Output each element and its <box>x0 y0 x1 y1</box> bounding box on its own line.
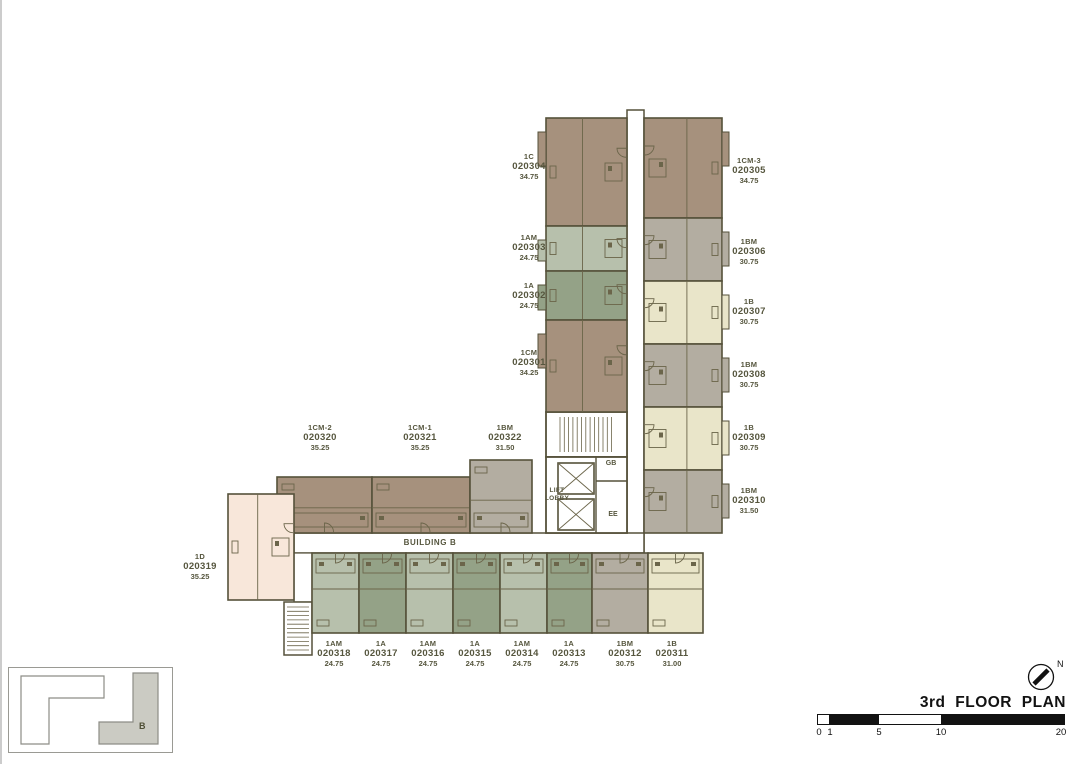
unit-number: 020305 <box>717 166 781 176</box>
key-plan-drawing <box>9 668 170 750</box>
stairs-core <box>546 412 627 457</box>
scale-tick-10: 10 <box>936 727 947 738</box>
unit-number: 020301 <box>497 358 561 368</box>
unit-area: 24.75 <box>497 302 561 310</box>
unit-number: 020321 <box>388 433 452 443</box>
key-plan: B <box>8 667 173 753</box>
unit-number: 020311 <box>640 649 704 659</box>
unit-number: 020310 <box>717 496 781 506</box>
scale-tick-0: 0 <box>816 727 821 738</box>
unit-area: 30.75 <box>717 444 781 452</box>
unit-number: 020322 <box>473 433 537 443</box>
unit-020322 <box>470 460 532 533</box>
unit-label-020319: 1D02031935.25 <box>168 553 232 581</box>
unit-label-020311: 1B02031131.00 <box>640 640 704 668</box>
corridor-stub <box>294 553 312 602</box>
unit-number: 020309 <box>717 433 781 443</box>
unit-number: 020307 <box>717 307 781 317</box>
unit-type: 1CM-1 <box>388 424 452 432</box>
unit-label-020308: 1BM02030830.75 <box>717 361 781 389</box>
unit-type: 1AM <box>497 234 561 242</box>
unit-label-020301: 1CM02030134.25 <box>497 349 561 377</box>
unit-020321 <box>372 477 470 533</box>
floor-plan-page: 1C02030434.751AM02030324.751A02030224.75… <box>0 0 1080 764</box>
unit-type: 1B <box>640 640 704 648</box>
unit-020317 <box>359 553 406 633</box>
unit-area: 31.50 <box>473 444 537 452</box>
unit-area: 24.75 <box>537 660 601 668</box>
key-plan-building-a-outline <box>21 676 104 744</box>
unit-number: 020308 <box>717 370 781 380</box>
room-label-ee: EE <box>600 511 626 518</box>
unit-type: 1BM <box>717 487 781 495</box>
unit-label-020306: 1BM02030630.75 <box>717 238 781 266</box>
unit-type: 1CM-2 <box>288 424 352 432</box>
unit-type: 1C <box>497 153 561 161</box>
scale-tick-20: 20 <box>1056 727 1067 738</box>
unit-label-020304: 1C02030434.75 <box>497 153 561 181</box>
scale-bar-strip <box>817 714 1065 725</box>
unit-area: 34.25 <box>497 369 561 377</box>
unit-area: 34.75 <box>717 177 781 185</box>
unit-area: 35.25 <box>288 444 352 452</box>
lift-lobby-line2: LOBBY <box>536 495 578 503</box>
corridor-vertical <box>627 110 644 553</box>
unit-020312 <box>592 553 648 633</box>
unit-area: 30.75 <box>717 258 781 266</box>
page-title: 3rd FLOOR PLAN <box>920 694 1066 712</box>
key-plan-building-b-shape <box>99 673 158 744</box>
unit-area: 34.75 <box>497 173 561 181</box>
unit-label-020309: 1B02030930.75 <box>717 424 781 452</box>
unit-number: 020304 <box>497 162 561 172</box>
north-label: N <box>1057 659 1064 669</box>
unit-area: 30.75 <box>717 381 781 389</box>
unit-type: 1D <box>168 553 232 561</box>
unit-number: 020303 <box>497 243 561 253</box>
unit-label-020321: 1CM-102032135.25 <box>388 424 452 452</box>
building-label: BUILDING B <box>394 538 466 547</box>
corridor-horizontal <box>294 533 644 553</box>
unit-label-020320: 1CM-202032035.25 <box>288 424 352 452</box>
room-label-gb: GB <box>598 460 624 467</box>
unit-area: 30.75 <box>717 318 781 326</box>
unit-020313 <box>547 553 592 633</box>
unit-label-020310: 1BM02031031.50 <box>717 487 781 515</box>
unit-type: 1BM <box>717 238 781 246</box>
key-plan-building-b-label: B <box>139 721 146 731</box>
unit-type: 1CM-3 <box>717 157 781 165</box>
unit-area: 35.25 <box>168 573 232 581</box>
unit-type: 1A <box>537 640 601 648</box>
unit-number: 020306 <box>717 247 781 257</box>
unit-020319 <box>228 494 294 600</box>
scale-bar-black-segment <box>829 715 879 724</box>
unit-type: 1BM <box>473 424 537 432</box>
unit-020315 <box>453 553 500 633</box>
scale-tick-1: 1 <box>827 727 832 738</box>
unit-label-020305: 1CM-302030534.75 <box>717 157 781 185</box>
unit-number: 020320 <box>288 433 352 443</box>
unit-area: 31.00 <box>640 660 704 668</box>
unit-number: 020302 <box>497 291 561 301</box>
unit-label-020303: 1AM02030324.75 <box>497 234 561 262</box>
unit-020318 <box>312 553 359 633</box>
unit-type: 1A <box>497 282 561 290</box>
unit-type: 1BM <box>717 361 781 369</box>
scale-bar: 0 1 5 10 20 <box>817 714 1067 742</box>
unit-area: 31.50 <box>717 507 781 515</box>
unit-020311 <box>648 553 703 633</box>
unit-type: 1B <box>717 424 781 432</box>
unit-label-020313: 1A02031324.75 <box>537 640 601 668</box>
unit-type: 1CM <box>497 349 561 357</box>
north-arrow: N <box>1026 659 1080 695</box>
unit-020316 <box>406 553 453 633</box>
lift-lobby-line1: LIFT <box>536 487 578 495</box>
unit-label-020302: 1A02030224.75 <box>497 282 561 310</box>
unit-label-020322: 1BM02032231.50 <box>473 424 537 452</box>
lift-lobby-label: LIFT LOBBY <box>536 487 578 503</box>
unit-area: 24.75 <box>497 254 561 262</box>
unit-020314 <box>500 553 547 633</box>
north-arrow-icon <box>1026 659 1080 695</box>
scale-bar-black-segment <box>941 715 1064 724</box>
unit-label-020307: 1B02030730.75 <box>717 298 781 326</box>
scale-tick-5: 5 <box>876 727 881 738</box>
unit-area: 35.25 <box>388 444 452 452</box>
unit-number: 020313 <box>537 649 601 659</box>
unit-type: 1B <box>717 298 781 306</box>
unit-number: 020319 <box>168 562 232 572</box>
